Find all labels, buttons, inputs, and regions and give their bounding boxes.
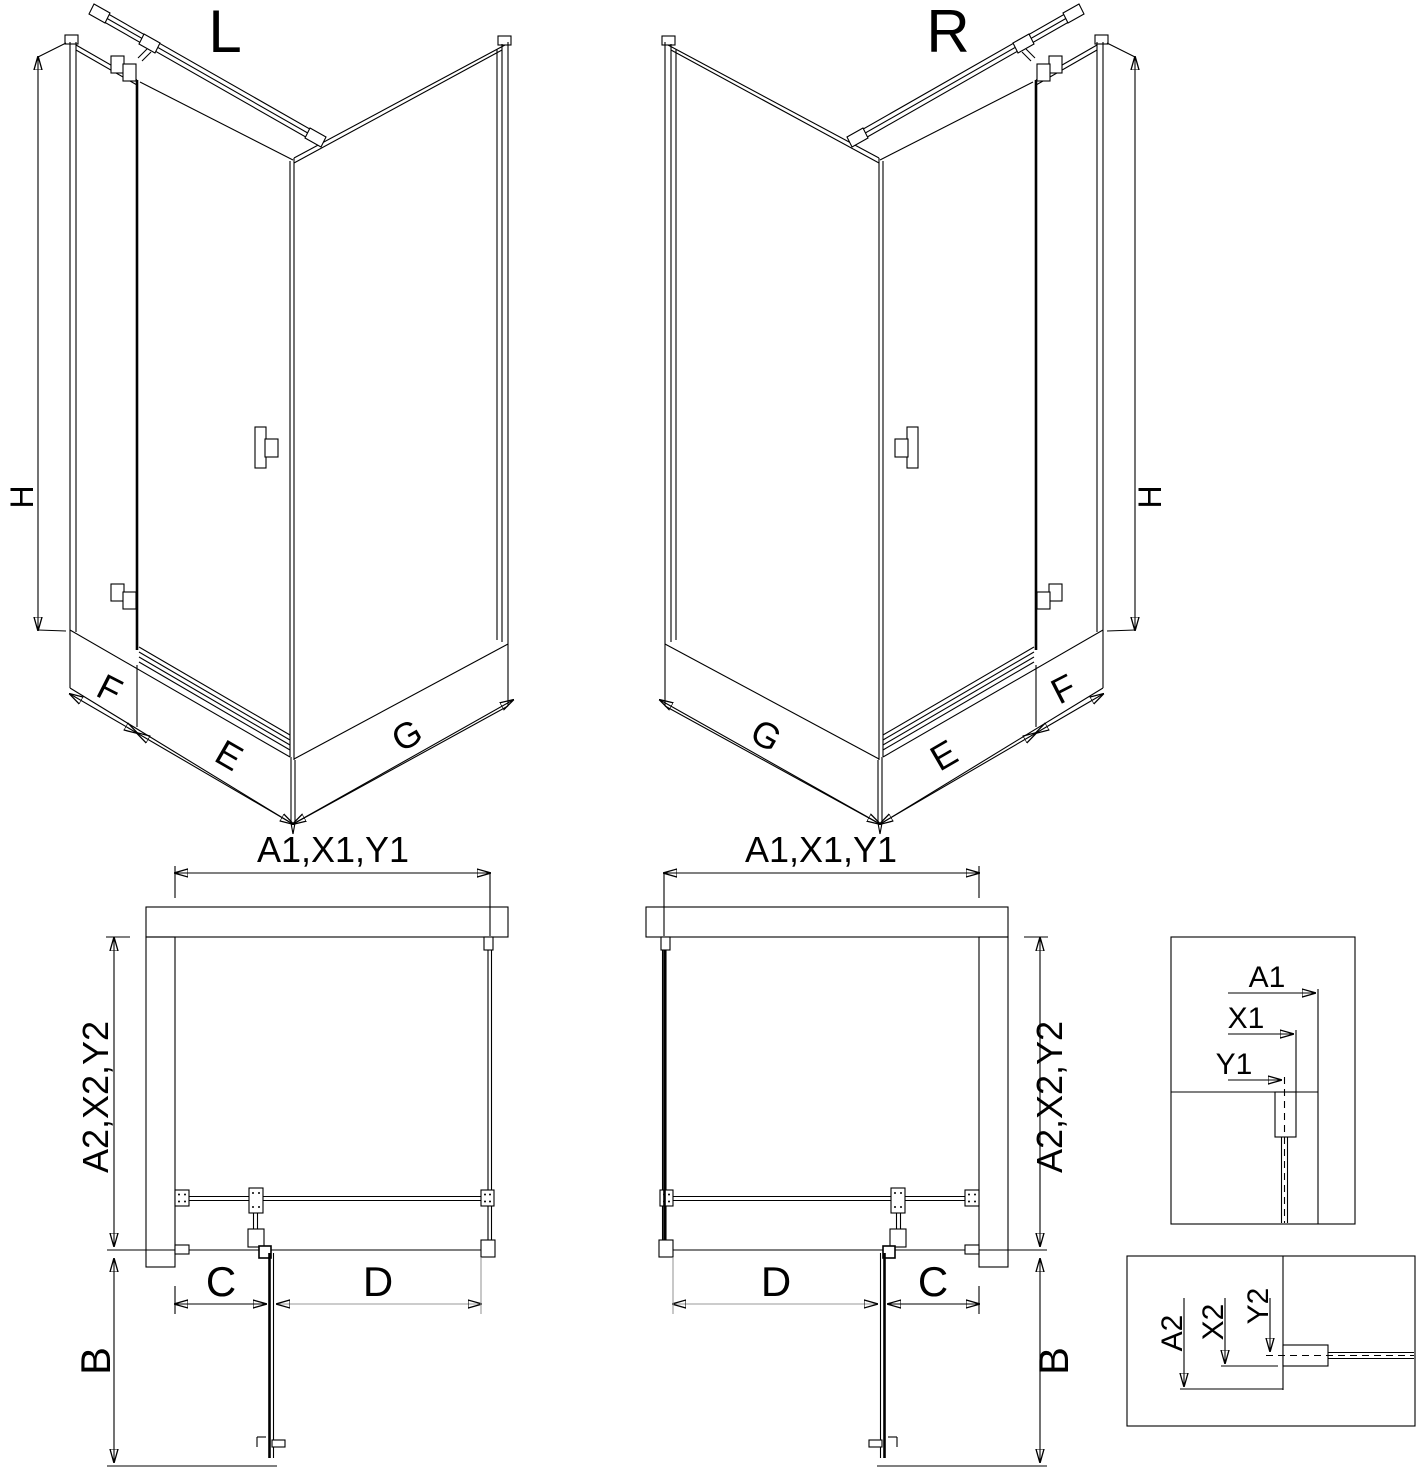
dim-b-right: B (1030, 1347, 1077, 1375)
detail-a1-label: A1 (1249, 961, 1286, 994)
plan-view-right (646, 866, 1048, 1466)
dim-depth-right: A2,X2,Y2 (1029, 1021, 1070, 1173)
detail-y1-label: Y1 (1216, 1048, 1253, 1081)
shower-enclosure-diagram: L R H H F E G F E G A1,X1,Y1 A1,X1,Y1 A2… (0, 0, 1426, 1476)
dim-c-left: C (206, 1258, 236, 1305)
dim-f-left: F (91, 666, 129, 713)
dim-e-left: E (209, 731, 250, 779)
dim-width-top-right: A1,X1,Y1 (745, 829, 897, 870)
plan-view-left (106, 866, 508, 1466)
dim-depth-left: A2,X2,Y2 (75, 1021, 116, 1173)
dim-c-right: C (918, 1258, 948, 1305)
dim-d-right: D (761, 1258, 791, 1305)
detail-a2-label: A2 (1156, 1315, 1189, 1352)
dim-b-left: B (72, 1347, 119, 1375)
dim-width-top-left: A1,X1,Y1 (257, 829, 409, 870)
dim-f-right: F (1044, 666, 1082, 713)
variant-r-title: R (926, 0, 969, 65)
dim-h-right: H (1132, 485, 1168, 508)
detail-y2-label: Y2 (1242, 1288, 1275, 1325)
dim-h-left: H (4, 485, 40, 508)
dim-d-left: D (363, 1258, 393, 1305)
drawing-sheet: L R H H F E G F E G A1,X1,Y1 A1,X1,Y1 A2… (0, 0, 1426, 1476)
detail-x2-label: X2 (1197, 1304, 1230, 1341)
dim-e-right: E (923, 731, 964, 779)
variant-l-title: L (208, 0, 241, 65)
detail-x1-label: X1 (1228, 1002, 1265, 1035)
